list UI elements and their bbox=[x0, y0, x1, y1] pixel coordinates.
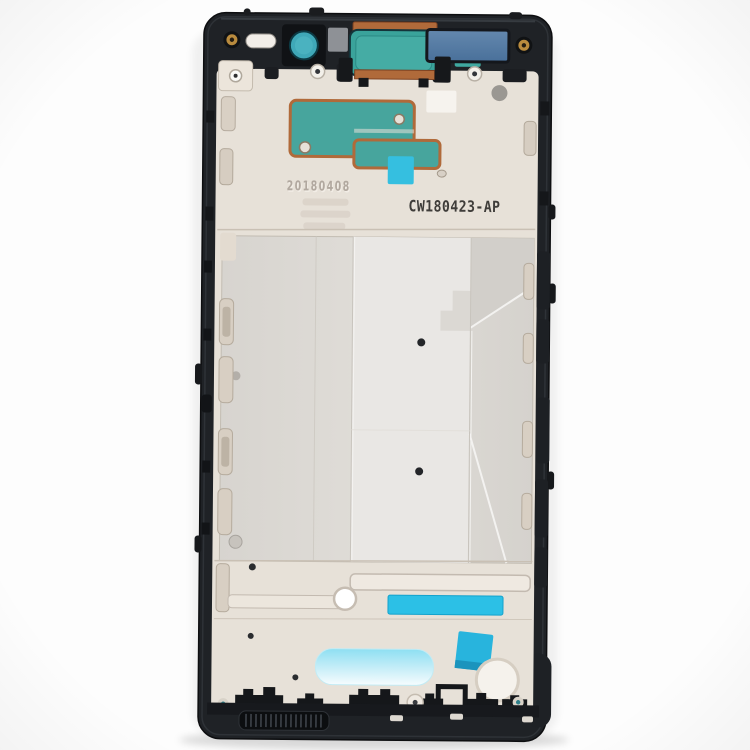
product-photo: 20180408 20180408 CW180423-AP bbox=[0, 0, 750, 750]
phone-frame-part-photo: 20180408 20180408 CW180423-AP bbox=[0, 0, 750, 750]
vignette-overlay bbox=[0, 0, 750, 750]
